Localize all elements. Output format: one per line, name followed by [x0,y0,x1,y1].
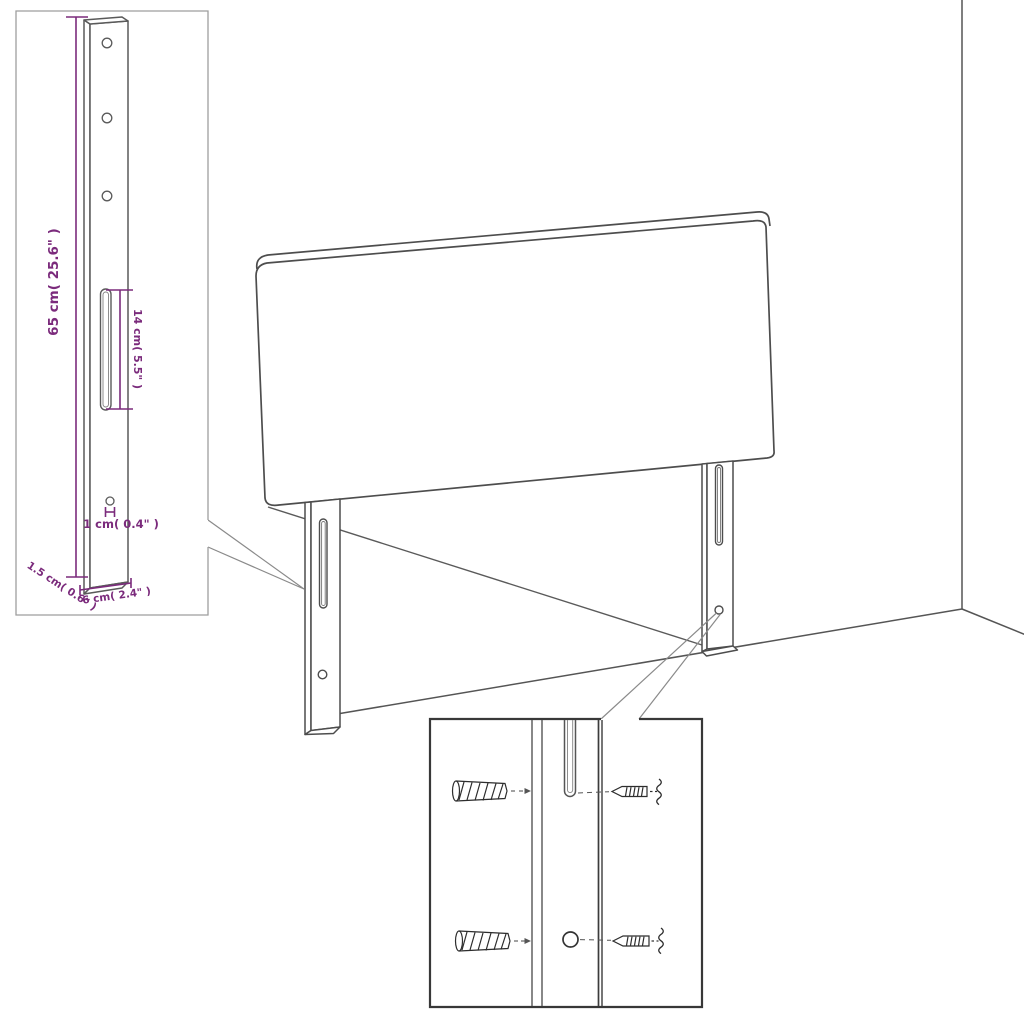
bracket-side-face [84,20,90,594]
hardware-inset-border [430,719,702,1007]
headboard-left-leg [305,499,340,735]
dim-slot-label: 14 cm( 5.5" ) [131,309,144,389]
hardware-detail-inset [430,719,702,1007]
bracket-detail-inset: 65 cm( 25.6" ) 14 cm( 5.5" ) 1 cm( 0.4" … [16,11,208,615]
headboard-front-face [256,221,774,506]
floor-line-left [340,609,962,714]
bracket-inset-leader-top [208,520,304,589]
product-dimension-diagram: 65 cm( 25.6" ) 14 cm( 5.5" ) 1 cm( 0.4" … [0,0,1024,1024]
diagram-canvas: 65 cm( 25.6" ) 14 cm( 5.5" ) 1 cm( 0.4" … [0,0,1024,1024]
bracket-inset-leader-bottom [208,547,304,589]
headboard-panel [256,212,774,505]
headboard-right-leg [702,461,738,656]
floor-line-right [962,609,1024,635]
hardware-inset-leader-right [639,614,721,719]
dim-height-label: 65 cm( 25.6" ) [46,228,62,336]
dim-hole-label: 1 cm( 0.4" ) [83,517,159,531]
inset-leader-lines [208,520,721,719]
left-leg-side-face [305,502,311,735]
bracket-front-face [90,21,128,588]
right-leg-front-face [707,461,733,649]
